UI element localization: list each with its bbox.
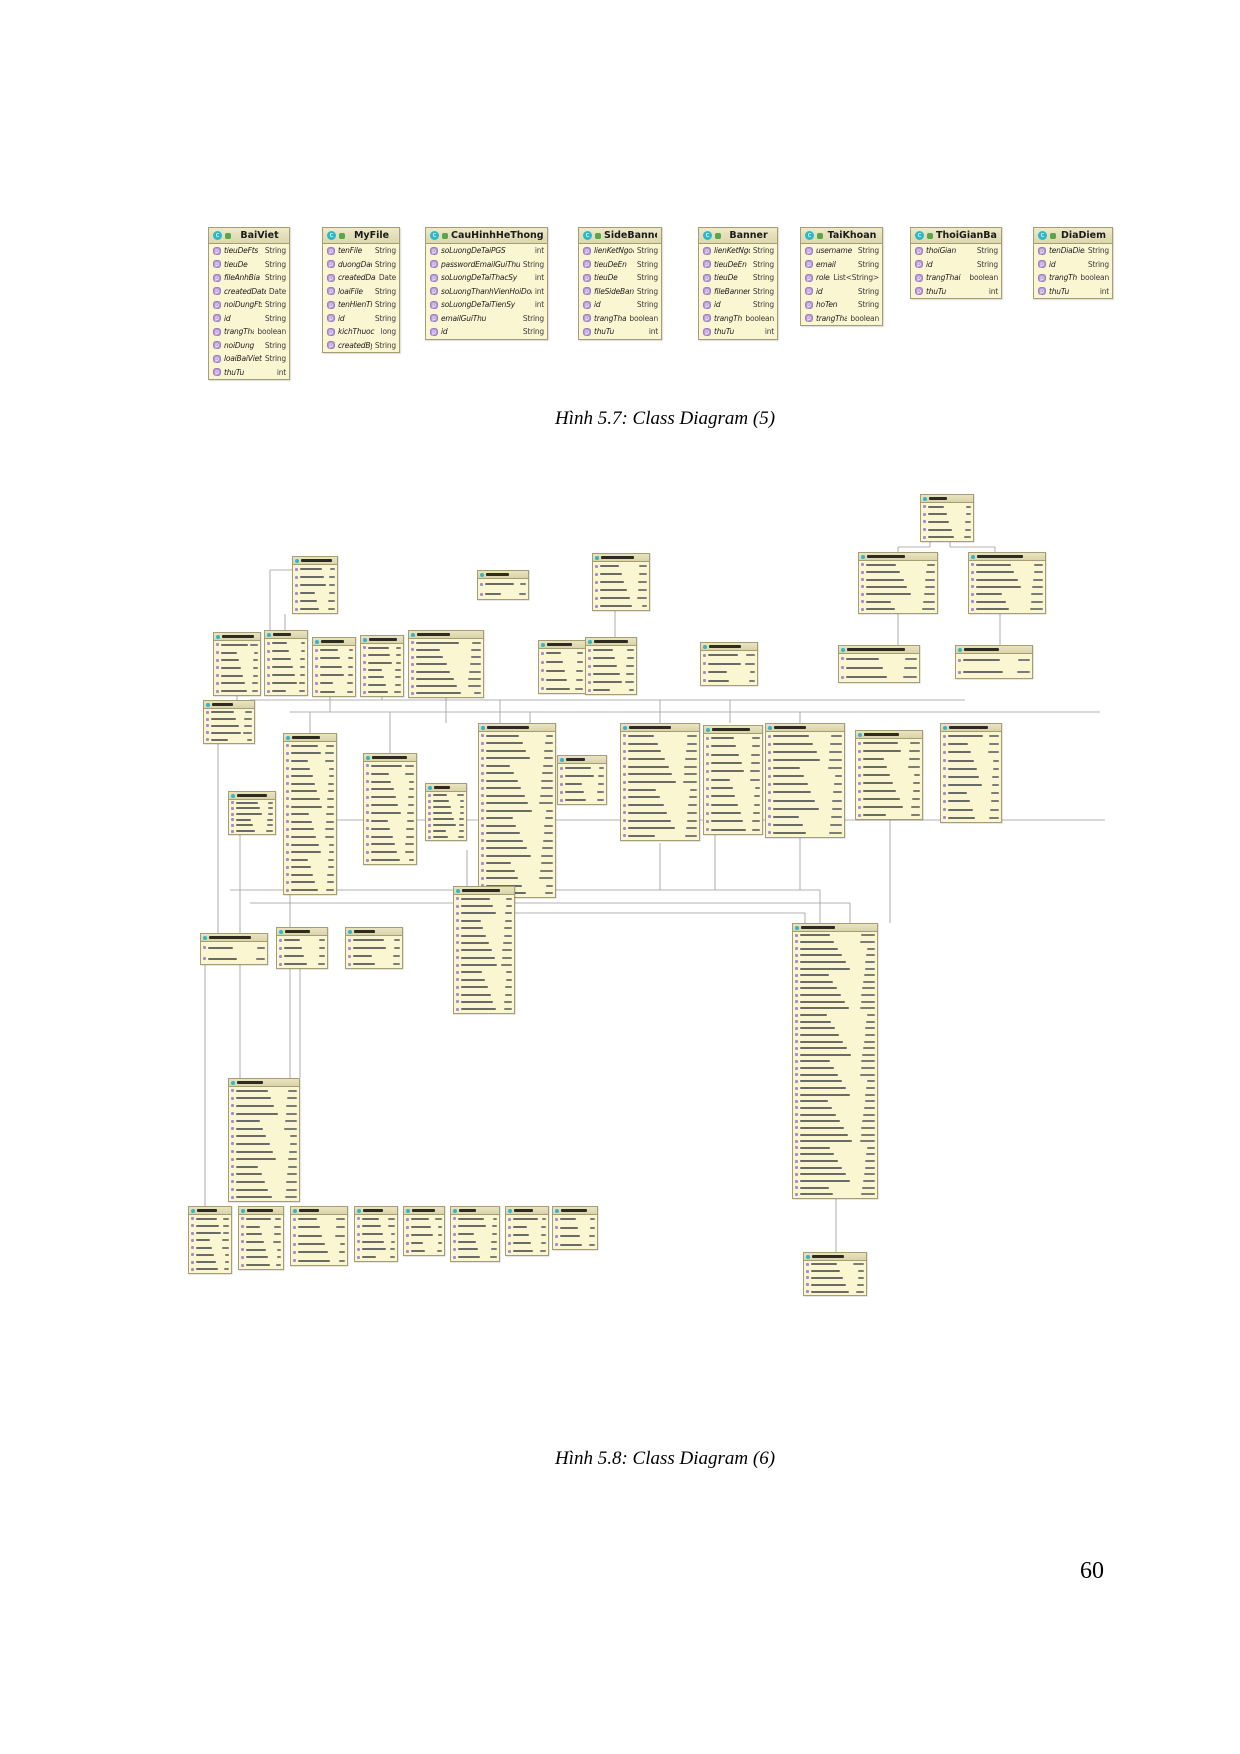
figure-caption-5-7: Hình 5.7: Class Diagram (5) <box>45 408 1240 430</box>
figure-caption-5-8: Hình 5.8: Class Diagram (6) <box>45 1448 1240 1470</box>
page-number: 60 <box>1080 1558 1104 1585</box>
diagram-connector-lines <box>0 0 1240 1754</box>
document-page: cBaiVietptieuDeFtsStringptieuDeStringpfi… <box>0 0 1240 1754</box>
